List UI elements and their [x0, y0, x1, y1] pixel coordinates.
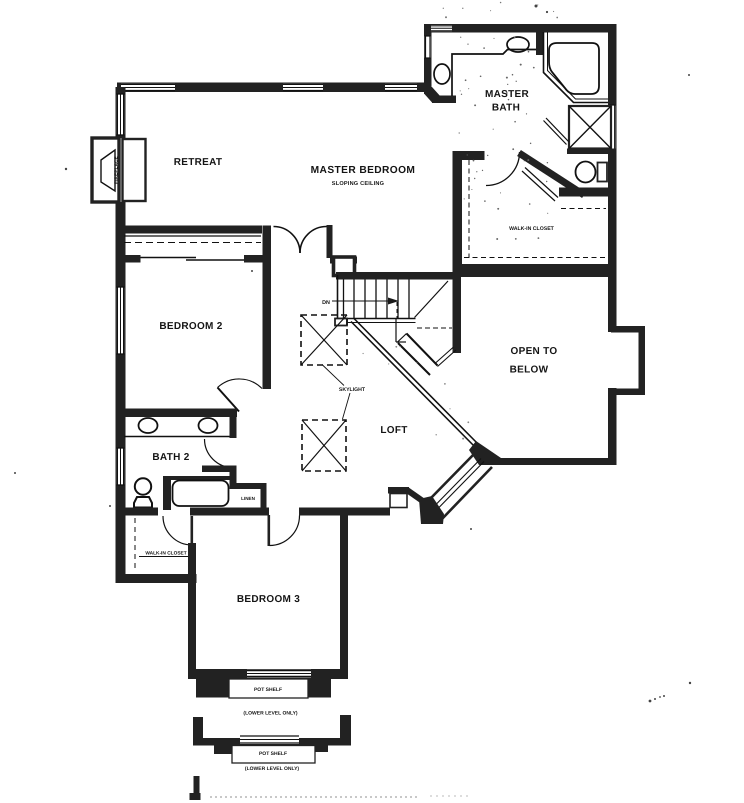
svg-text:MASTER BEDROOM: MASTER BEDROOM	[311, 165, 416, 176]
svg-text:SLOPING CEILING: SLOPING CEILING	[332, 181, 384, 187]
svg-text:SKYLIGHT: SKYLIGHT	[339, 387, 366, 393]
svg-text:BELOW: BELOW	[510, 365, 549, 376]
svg-text:DN: DN	[322, 300, 330, 306]
svg-text:BATH: BATH	[492, 103, 520, 114]
svg-text:(LOWER LEVEL ONLY): (LOWER LEVEL ONLY)	[243, 711, 298, 717]
svg-text:(LOWER LEVEL ONLY): (LOWER LEVEL ONLY)	[245, 766, 300, 772]
svg-text:LOFT: LOFT	[380, 425, 407, 436]
svg-text:FIREPLACE: FIREPLACE	[114, 156, 119, 184]
svg-text:WALK-IN CLOSET: WALK-IN CLOSET	[145, 551, 186, 557]
svg-text:OPEN TO: OPEN TO	[511, 346, 558, 357]
svg-text:RETREAT: RETREAT	[174, 157, 223, 168]
svg-text:WALK-IN CLOSET: WALK-IN CLOSET	[509, 226, 554, 232]
svg-text:BATH 2: BATH 2	[152, 452, 189, 463]
svg-text:LINEN: LINEN	[241, 496, 255, 501]
svg-text:POT SHELF: POT SHELF	[254, 687, 282, 693]
svg-text:BEDROOM 2: BEDROOM 2	[159, 321, 222, 332]
svg-text:BEDROOM 3: BEDROOM 3	[237, 594, 300, 605]
svg-text:POT SHELF: POT SHELF	[259, 751, 287, 757]
svg-text:MASTER: MASTER	[485, 89, 529, 100]
